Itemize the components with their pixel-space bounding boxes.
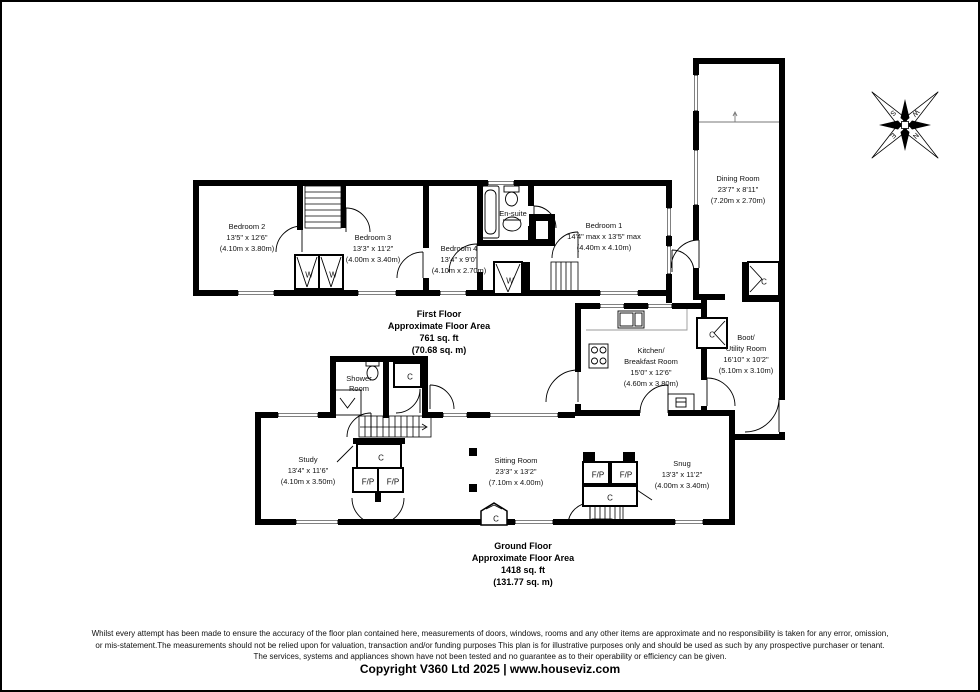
disclaimer-line: Whilst every attempt has been made to en… (2, 628, 978, 640)
ceiling-line (699, 112, 779, 122)
room-label-study: Study 13'4" x 11'6" (4.10m x 3.50m) (281, 454, 336, 487)
room-name: Snug (655, 458, 710, 469)
floor-title: Ground Floor (472, 540, 574, 552)
room-dims-metric: (4.10m x 3.50m) (281, 476, 336, 487)
floor-title: First Floor (388, 308, 490, 320)
room-label-kitchen: Kitchen/ Breakfast Room 15'0" x 12'6" (4… (624, 345, 679, 389)
hob-icon (589, 344, 608, 368)
floor-subtitle: Approximate Floor Area (472, 552, 574, 564)
copyright-text: Copyright V360 Ltd 2025 | www.houseviz.c… (2, 664, 978, 676)
floor-subtitle: Approximate Floor Area (388, 320, 490, 332)
room-name: Study (281, 454, 336, 465)
fireplace-marker: F/P (362, 478, 374, 487)
room-dims: 13'4" x 9'0" (432, 254, 487, 265)
cupboard-marker: C (709, 331, 715, 340)
floor-area-imperial: 761 sq. ft (388, 332, 490, 344)
room-name: Utility Room (719, 343, 774, 354)
room-dims-metric: (5.10m x 3.10m) (719, 365, 774, 376)
disclaimer-line: or mis-statement.The measurements should… (2, 640, 978, 652)
room-label-snug: Snug 13'3" x 11'2" (4.00m x 3.40m) (655, 458, 710, 491)
room-label-sitting: Sitting Room 23'3" x 13'2" (7.10m x 4.00… (489, 455, 544, 488)
room-name: Sitting Room (489, 455, 544, 466)
basin-icon (503, 217, 521, 231)
first-floor-area-label: First Floor Approximate Floor Area 761 s… (388, 308, 490, 356)
room-dims-metric: (4.00m x 3.40m) (346, 254, 401, 265)
compass-rose: N E S W (839, 59, 972, 192)
fireplace-marker: F/P (620, 471, 632, 480)
room-name: Bedroom 2 (220, 221, 275, 232)
cupboard-marker: C (493, 515, 499, 524)
cupboard-marker: C (761, 278, 767, 287)
room-name: En-suite (499, 208, 527, 219)
room-name: Dining Room (711, 173, 766, 184)
fireplace-marker: F/P (387, 478, 399, 487)
room-dims: 23'3" x 13'2" (489, 466, 544, 477)
wardrobe-marker: W (506, 277, 514, 286)
room-name: Bedroom 1 (567, 220, 641, 231)
room-name: Shower (346, 374, 371, 384)
appliance-icon (668, 394, 694, 411)
room-dims: 13'3" x 11'2" (346, 243, 401, 254)
room-dims: 15'0" x 12'6" (624, 367, 679, 378)
room-dims-metric: (7.20m x 2.70m) (711, 195, 766, 206)
floor-area-metric: (131.77 sq. m) (472, 576, 574, 588)
toilet-icon (504, 186, 519, 206)
room-dims: 14'4" max x 13'5" max (567, 231, 641, 242)
sink-icon (618, 311, 644, 328)
room-dims-metric: (4.60m x 3.80m) (624, 378, 679, 389)
room-dims: 13'5" x 12'6" (220, 232, 275, 243)
cupboard-marker: C (378, 454, 384, 463)
floor-plan-page: N E S W Bedroom 2 13'5" x 12'6" (4.10m x… (0, 0, 980, 692)
cupboard-marker: C (607, 494, 613, 503)
room-name: Room (346, 384, 371, 394)
disclaimer-line: The services, systems and appliances sho… (2, 651, 978, 663)
room-dims: 13'4" x 11'6" (281, 465, 336, 476)
floor-area-imperial: 1418 sq. ft (472, 564, 574, 576)
wardrobe-marker: W (329, 271, 337, 280)
kitchen-counter (586, 309, 687, 330)
fireplace-marker: F/P (592, 471, 604, 480)
room-name: Bedroom 4 (432, 243, 487, 254)
room-label-bedroom-4: Bedroom 4 13'4" x 9'0" (4.10m x 2.70m) (432, 243, 487, 276)
room-name: Boot/ (719, 332, 774, 343)
room-label-dining: Dining Room 23'7" x 8'11" (7.20m x 2.70m… (711, 173, 766, 206)
room-dims-metric: (7.10m x 4.00m) (489, 477, 544, 488)
room-dims: 13'3" x 11'2" (655, 469, 710, 480)
cupboard-marker: C (407, 373, 413, 382)
room-dims-metric: (4.10m x 2.70m) (432, 265, 487, 276)
bath-icon (482, 186, 499, 238)
room-dims-metric: (4.00m x 3.40m) (655, 480, 710, 491)
wardrobe-marker: W (305, 271, 313, 280)
room-name: Kitchen/ (624, 345, 679, 356)
room-name: Breakfast Room (624, 356, 679, 367)
room-label-ensuite: En-suite (499, 208, 527, 219)
room-label-bedroom-1: Bedroom 1 14'4" max x 13'5" max (4.40m x… (567, 220, 641, 253)
room-dims-metric: (4.10m x 3.80m) (220, 243, 275, 254)
room-dims: 23'7" x 8'11" (711, 184, 766, 195)
floor-area-metric: (70.68 sq. m) (388, 344, 490, 356)
room-name: Bedroom 3 (346, 232, 401, 243)
chimney-recess (536, 221, 548, 239)
room-dims: 16'10" x 10'2" (719, 354, 774, 365)
room-label-boot-utility: Boot/ Utility Room 16'10" x 10'2" (5.10m… (719, 332, 774, 376)
disclaimer-text: Whilst every attempt has been made to en… (2, 628, 978, 675)
ground-floor-area-label: Ground Floor Approximate Floor Area 1418… (472, 540, 574, 588)
room-dims-metric: (4.40m x 4.10m) (567, 242, 641, 253)
room-label-shower: Shower Room (346, 374, 371, 394)
room-label-bedroom-3: Bedroom 3 13'3" x 11'2" (4.00m x 3.40m) (346, 232, 401, 265)
room-label-bedroom-2: Bedroom 2 13'5" x 12'6" (4.10m x 3.80m) (220, 221, 275, 254)
